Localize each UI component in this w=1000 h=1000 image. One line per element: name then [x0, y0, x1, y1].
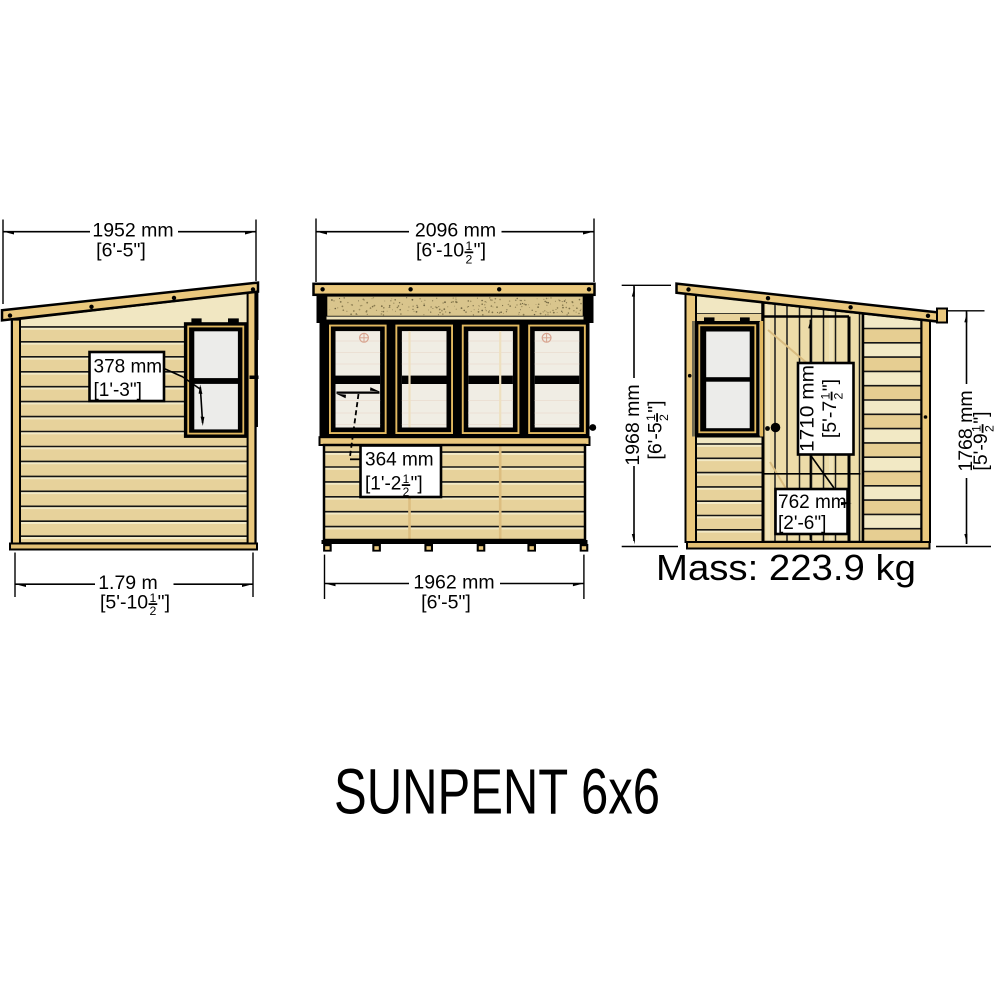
- svg-text:[6'-10: [6'-10: [416, 240, 464, 262]
- svg-text:"]: "]: [158, 592, 170, 614]
- svg-text:"]: "]: [970, 411, 992, 423]
- svg-text:378 mm: 378 mm: [94, 357, 163, 378]
- svg-text:"]: "]: [645, 400, 667, 412]
- svg-text:[6'-5"]: [6'-5"]: [96, 240, 146, 262]
- svg-text:2: 2: [983, 425, 997, 432]
- svg-text:364 mm: 364 mm: [365, 450, 434, 471]
- svg-text:2: 2: [465, 252, 472, 266]
- svg-text:[5'-7: [5'-7: [819, 401, 841, 438]
- svg-text:2: 2: [832, 392, 846, 399]
- svg-text:[6'-5: [6'-5: [645, 422, 667, 459]
- svg-text:"]: "]: [411, 474, 423, 495]
- svg-text:"]: "]: [819, 379, 841, 391]
- svg-text:2: 2: [403, 485, 410, 499]
- svg-text:2: 2: [149, 604, 156, 618]
- svg-text:2096 mm: 2096 mm: [415, 220, 496, 242]
- svg-text:[5'-10: [5'-10: [100, 592, 148, 614]
- svg-text:1: 1: [403, 472, 410, 486]
- svg-text:[1'-2: [1'-2: [365, 474, 401, 495]
- svg-text:762 mm: 762 mm: [778, 492, 847, 513]
- svg-text:1962 mm: 1962 mm: [413, 572, 494, 594]
- svg-text:2: 2: [657, 414, 671, 421]
- svg-text:[2'-6"]: [2'-6"]: [778, 513, 826, 534]
- svg-text:1: 1: [819, 392, 833, 399]
- svg-text:SUNPENT 6x6: SUNPENT 6x6: [334, 756, 660, 828]
- svg-text:[1'-3"]: [1'-3"]: [94, 380, 142, 401]
- svg-text:1: 1: [465, 239, 472, 253]
- svg-text:1: 1: [149, 591, 156, 605]
- svg-text:Mass: 223.9 kg: Mass: 223.9 kg: [656, 547, 916, 588]
- svg-text:1: 1: [970, 425, 984, 432]
- svg-text:1952 mm: 1952 mm: [92, 220, 173, 242]
- svg-text:1: 1: [644, 414, 658, 421]
- svg-text:1710 mm: 1710 mm: [797, 365, 819, 452]
- svg-text:1968 mm: 1968 mm: [622, 384, 644, 465]
- svg-text:[5'-9: [5'-9: [970, 433, 992, 470]
- svg-text:[6'-5"]: [6'-5"]: [421, 592, 471, 614]
- svg-text:"]: "]: [474, 240, 486, 262]
